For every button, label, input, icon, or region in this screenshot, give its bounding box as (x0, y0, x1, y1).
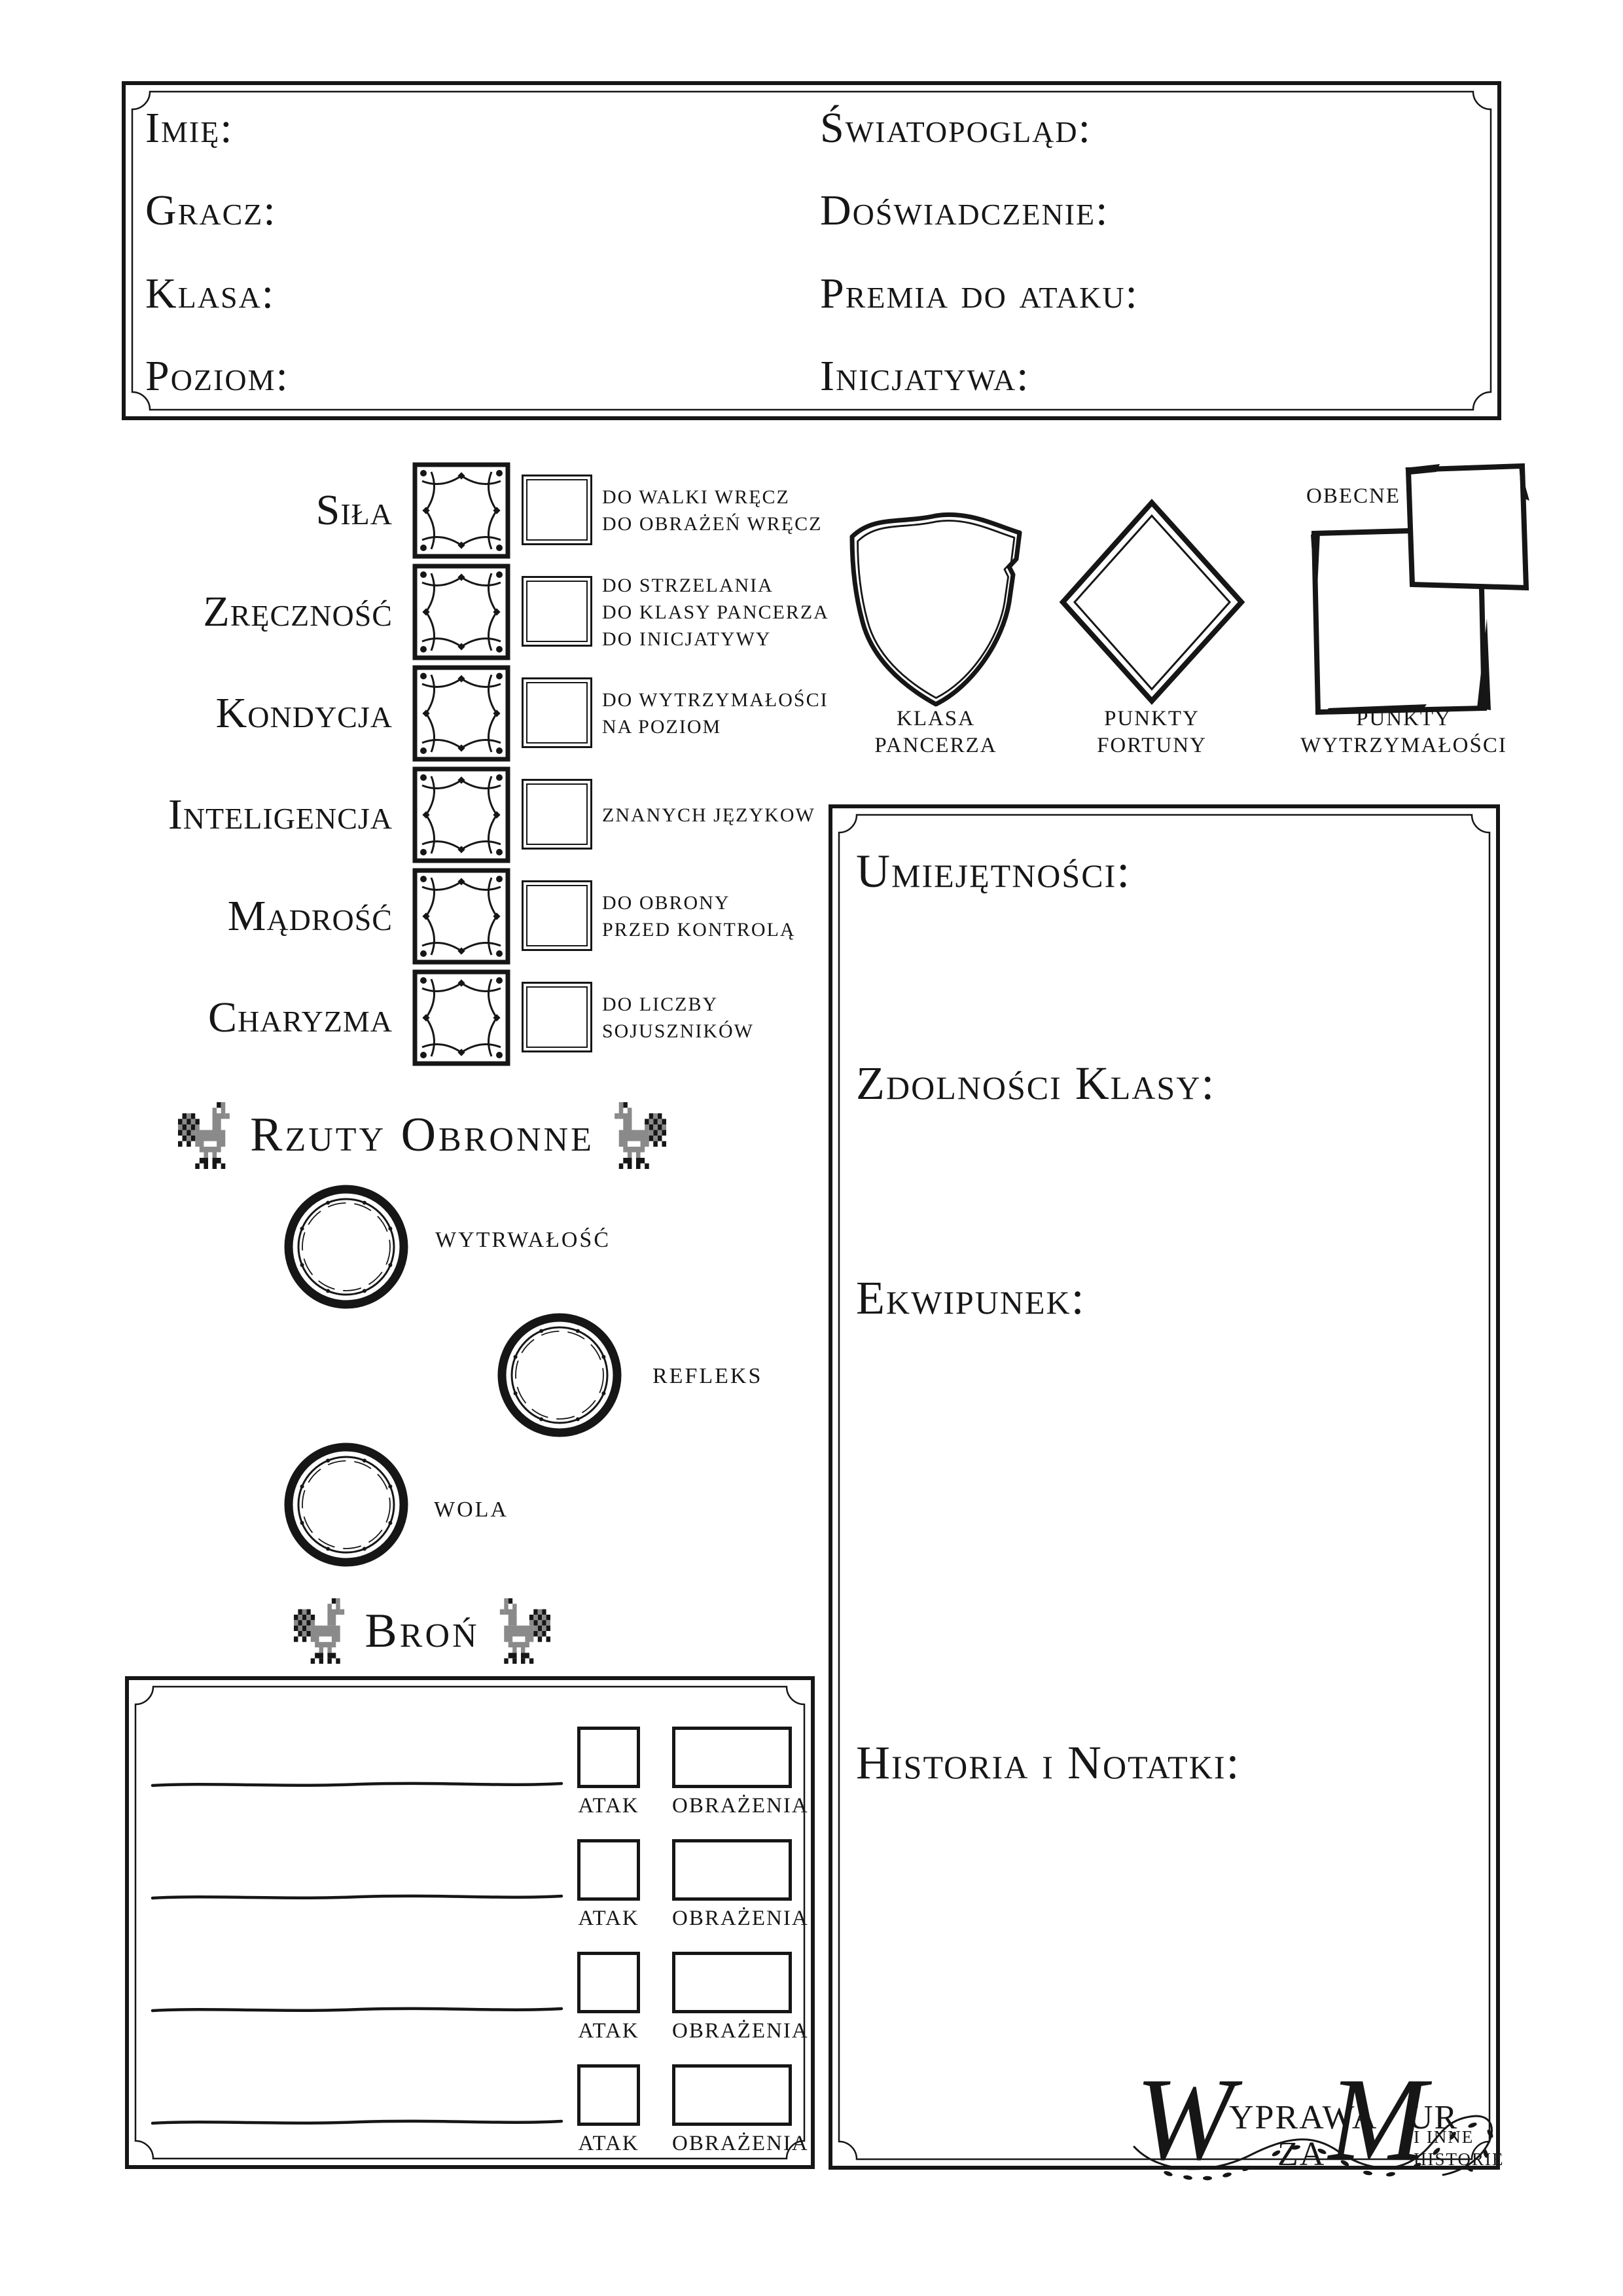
saving-throws-heading: Rzuty Obronne (164, 1094, 681, 1176)
attribute-label: Inteligencja (92, 766, 393, 863)
attribute-bonus-box[interactable] (522, 880, 592, 951)
save-label-refleks: REFLEKS (652, 1364, 762, 1389)
klasa-input-area[interactable] (301, 264, 798, 323)
weapon-name-line[interactable] (151, 2118, 564, 2127)
attribute-notes: ZNANYCH JĘZYKOW (602, 766, 851, 863)
premia-input-area[interactable] (1224, 264, 1486, 323)
field-label-poziom: Poziom: (145, 351, 289, 401)
attribute-bonus-box[interactable] (522, 982, 592, 1052)
poziom-input-area[interactable] (327, 346, 798, 405)
saving-throws-title: Rzuty Obronne (250, 1107, 594, 1163)
attribute-note: DO KLASY PANCERZA (602, 600, 851, 624)
attribute-note: DO STRZELANIA (602, 573, 851, 598)
swiatopoglad-input-area[interactable] (1145, 98, 1486, 157)
armor-class-shield[interactable] (838, 496, 1034, 713)
attribute-row-sila: Siła DO WALKI WRĘCZ DO OBRAŻEŃ WRĘCZ (92, 462, 851, 559)
weapons-heading: Broń (275, 1592, 569, 1670)
save-circle-refleks[interactable] (495, 1310, 624, 1440)
section-zdolnosci-klasy: Zdolności Klasy: (856, 1056, 1215, 1111)
attribute-row-zrecznosc: Zręczność DO STRZELANIA DO KLASY PANCERZ… (92, 564, 851, 660)
fortune-points-diamond[interactable] (1059, 499, 1245, 705)
weapon-damage-label: OBRAŻENIA (672, 2019, 792, 2043)
rooster-icon (178, 1102, 238, 1169)
attribute-row-charyzma: Charyzma DO LICZBY SOJUSZNIKÓW (92, 969, 851, 1066)
attribute-label: Siła (92, 462, 393, 559)
attribute-note: SOJUSZNIKÓW (602, 1019, 851, 1043)
attribute-label: Kondycja (92, 665, 393, 762)
weapon-damage-label: OBRAŻENIA (672, 1907, 792, 1931)
save-label-wola: WOLA (434, 1498, 508, 1522)
attribute-score-box[interactable] (412, 462, 510, 559)
field-label-gracz: Gracz: (145, 186, 277, 236)
logo-letter-w: W (1135, 2060, 1234, 2178)
save-label-wytrwalosc: WYTRWAŁOŚĆ (435, 1228, 611, 1253)
attribute-note: PRZED KONTROLĄ (602, 918, 851, 942)
field-label-doswiadczenie: Doświadczenie: (820, 186, 1109, 236)
attribute-bonus-box[interactable] (522, 576, 592, 647)
character-sheet-page: Imię: Gracz: Klasa: Poziom: Światopogląd… (0, 0, 1623, 2296)
weapon-attack-label: ATAK (577, 2132, 640, 2156)
hit-points-current-box (1408, 466, 1526, 588)
attribute-notes: DO LICZBY SOJUSZNIKÓW (602, 969, 851, 1066)
logo-tagline-1: I INNE (1414, 2127, 1474, 2147)
weapon-name-line[interactable] (151, 1780, 564, 1789)
attribute-label: Charyzma (92, 969, 393, 1066)
attribute-score-box[interactable] (412, 868, 510, 965)
weapon-damage-label: OBRAŻENIA (672, 2132, 792, 2156)
doswiadczenie-input-area[interactable] (1171, 181, 1486, 240)
weapon-attack-label: ATAK (577, 1907, 640, 1931)
attribute-bonus-box[interactable] (522, 779, 592, 850)
attribute-score-box[interactable] (412, 665, 510, 762)
logo-za: ZA (1277, 2135, 1325, 2174)
attribute-notes: DO WALKI WRĘCZ DO OBRAŻEŃ WRĘCZ (602, 462, 851, 559)
attribute-bonus-box[interactable] (522, 677, 592, 748)
attribute-note: DO WALKI WRĘCZ (602, 485, 851, 509)
attribute-score-box[interactable] (412, 969, 510, 1066)
weapons-title: Broń (365, 1604, 479, 1659)
attribute-score-box[interactable] (412, 564, 510, 660)
attribute-row-inteligencja: Inteligencja ZNANYCH JĘZYKOW (92, 766, 851, 863)
logo-tagline-2: HISTORIE (1414, 2149, 1505, 2170)
inicjatywa-input-area[interactable] (1113, 346, 1486, 405)
save-circle-wola[interactable] (281, 1440, 411, 1570)
attribute-bonus-box[interactable] (522, 475, 592, 545)
attribute-notes: DO OBRONY PRZED KONTROLĄ (602, 868, 851, 965)
field-label-swiatopoglad: Światopogląd: (820, 103, 1092, 153)
rooster-icon (491, 1598, 550, 1664)
attribute-score-box[interactable] (412, 766, 510, 863)
attribute-note: DO LICZBY (602, 992, 851, 1016)
section-umiejetnosci: Umiejętności: (856, 844, 1131, 899)
rooster-icon (606, 1102, 666, 1169)
weapon-attack-box[interactable] (577, 2064, 640, 2126)
field-label-inicjatywa: Inicjatywa: (820, 351, 1029, 401)
attribute-label: Zręczność (92, 564, 393, 660)
fortune-points-label: PUNKTY FORTUNY (1054, 706, 1250, 759)
attribute-note: DO OBRONY (602, 891, 851, 915)
weapon-name-line[interactable] (151, 1893, 564, 1902)
attribute-row-kondycja: Kondycja DO WYTRZYMAŁOŚCI NA POZIOM (92, 665, 851, 762)
rooster-icon (294, 1598, 353, 1664)
weapon-attack-box[interactable] (577, 1839, 640, 1901)
attribute-label: Mądrość (92, 868, 393, 965)
ekwipunek-notes-area[interactable] (851, 1338, 1479, 1728)
field-label-premia: Premia do ataku: (820, 269, 1139, 319)
attribute-notes: DO STRZELANIA DO KLASY PANCERZA DO INICJ… (602, 564, 851, 660)
attribute-notes: DO WYTRZYMAŁOŚCI NA POZIOM (602, 665, 851, 762)
weapon-damage-box[interactable] (672, 2064, 792, 2126)
section-historia: Historia i Notatki: (856, 1736, 1240, 1790)
attribute-note: DO OBRAŻEŃ WRĘCZ (602, 512, 851, 536)
weapon-attack-box[interactable] (577, 1727, 640, 1788)
section-ekwipunek: Ekwipunek: (856, 1271, 1086, 1325)
attribute-row-madrosc: Mądrość DO OBRONY PRZED KONTROLĄ (92, 868, 851, 965)
attribute-note: DO WYTRZYMAŁOŚCI (602, 688, 851, 712)
hit-points-label: PUNKTY WYTRZYMAŁOŚCI (1286, 706, 1522, 759)
hit-points-boxes[interactable] (1306, 461, 1531, 717)
weapon-damage-box[interactable] (672, 1727, 792, 1788)
weapon-name-line[interactable] (151, 2005, 564, 2015)
attribute-note: ZNANYCH JĘZYKOW (602, 803, 851, 827)
imie-input-area[interactable] (281, 98, 798, 157)
weapon-damage-label: OBRAŻENIA (672, 1794, 792, 1818)
weapon-attack-label: ATAK (577, 1794, 640, 1818)
field-label-klasa: Klasa: (145, 269, 275, 319)
save-circle-wytrwalosc[interactable] (281, 1182, 411, 1312)
zdolnosci-notes-area[interactable] (851, 1122, 1479, 1263)
weapon-attack-box[interactable] (577, 1952, 640, 2013)
field-label-imie: Imię: (145, 103, 234, 153)
weapon-damage-box[interactable] (672, 1839, 792, 1901)
armor-class-label: KLASA PANCERZA (838, 706, 1034, 759)
umiejetnosci-notes-area[interactable] (851, 910, 1479, 1050)
attribute-note: DO INICJATYWY (602, 627, 851, 651)
weapon-damage-box[interactable] (672, 1952, 792, 2013)
gracz-input-area[interactable] (308, 181, 798, 240)
weapon-attack-label: ATAK (577, 2019, 640, 2043)
attribute-note: NA POZIOM (602, 715, 851, 739)
historia-notes-area[interactable] (851, 1803, 1479, 2052)
